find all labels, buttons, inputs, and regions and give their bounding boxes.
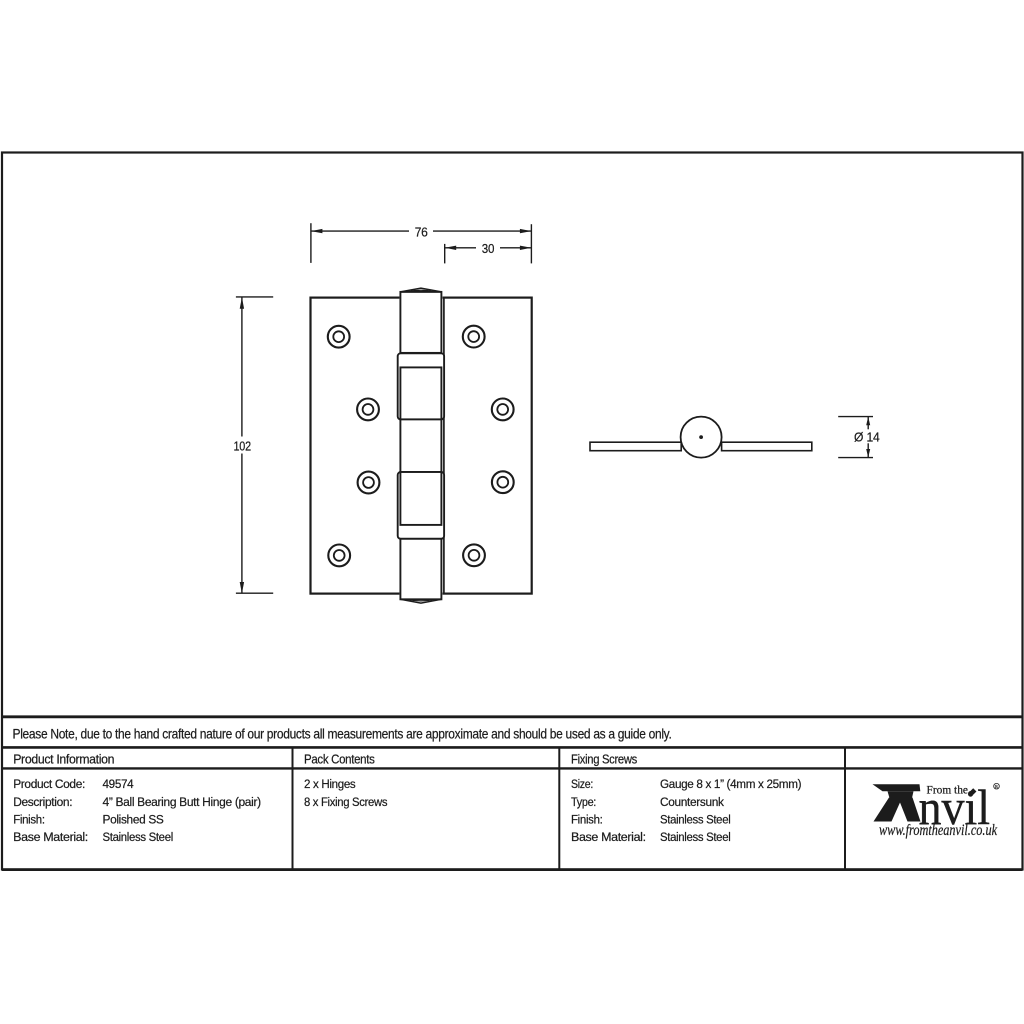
svg-text:Countersunk: Countersunk (660, 795, 725, 809)
svg-text:Gauge 8 x 1” (4mm x 25mm): Gauge 8 x 1” (4mm x 25mm) (660, 777, 801, 791)
svg-text:Finish:: Finish: (13, 812, 45, 826)
svg-text:30: 30 (482, 241, 495, 256)
svg-text:102: 102 (233, 439, 251, 454)
svg-text:Base Material:: Base Material: (13, 830, 88, 844)
svg-text:49574: 49574 (103, 777, 134, 791)
svg-text:Base Material:: Base Material: (571, 830, 646, 844)
svg-text:Product Code:: Product Code: (13, 777, 85, 791)
svg-text:8 x Fixing Screws: 8 x Fixing Screws (304, 795, 387, 809)
svg-text:4” Ball Bearing Butt Hinge (pa: 4” Ball Bearing Butt Hinge (pair) (103, 795, 262, 809)
svg-text:Product Information: Product Information (13, 751, 114, 766)
svg-text:Polished SS: Polished SS (103, 812, 164, 826)
svg-text:Please Note, due to the hand c: Please Note, due to the hand crafted nat… (13, 727, 672, 742)
svg-text:Description:: Description: (13, 795, 72, 809)
svg-text:Size:: Size: (571, 777, 593, 791)
svg-text:Finish:: Finish: (571, 812, 603, 826)
svg-text:Pack Contents: Pack Contents (304, 751, 375, 766)
svg-text:Stainless Steel: Stainless Steel (103, 830, 173, 844)
svg-text:Stainless Steel: Stainless Steel (660, 812, 730, 826)
svg-text:Type:: Type: (571, 795, 596, 809)
svg-text:76: 76 (415, 225, 428, 240)
svg-text:Stainless Steel: Stainless Steel (660, 830, 730, 844)
svg-text:www.fromtheanvil.co.uk: www.fromtheanvil.co.uk (879, 822, 998, 839)
svg-text:Fixing Screws: Fixing Screws (571, 751, 637, 766)
svg-text:Ø 14: Ø 14 (854, 429, 880, 444)
svg-text:2 x Hinges: 2 x Hinges (304, 777, 356, 791)
svg-text:R: R (995, 784, 998, 789)
